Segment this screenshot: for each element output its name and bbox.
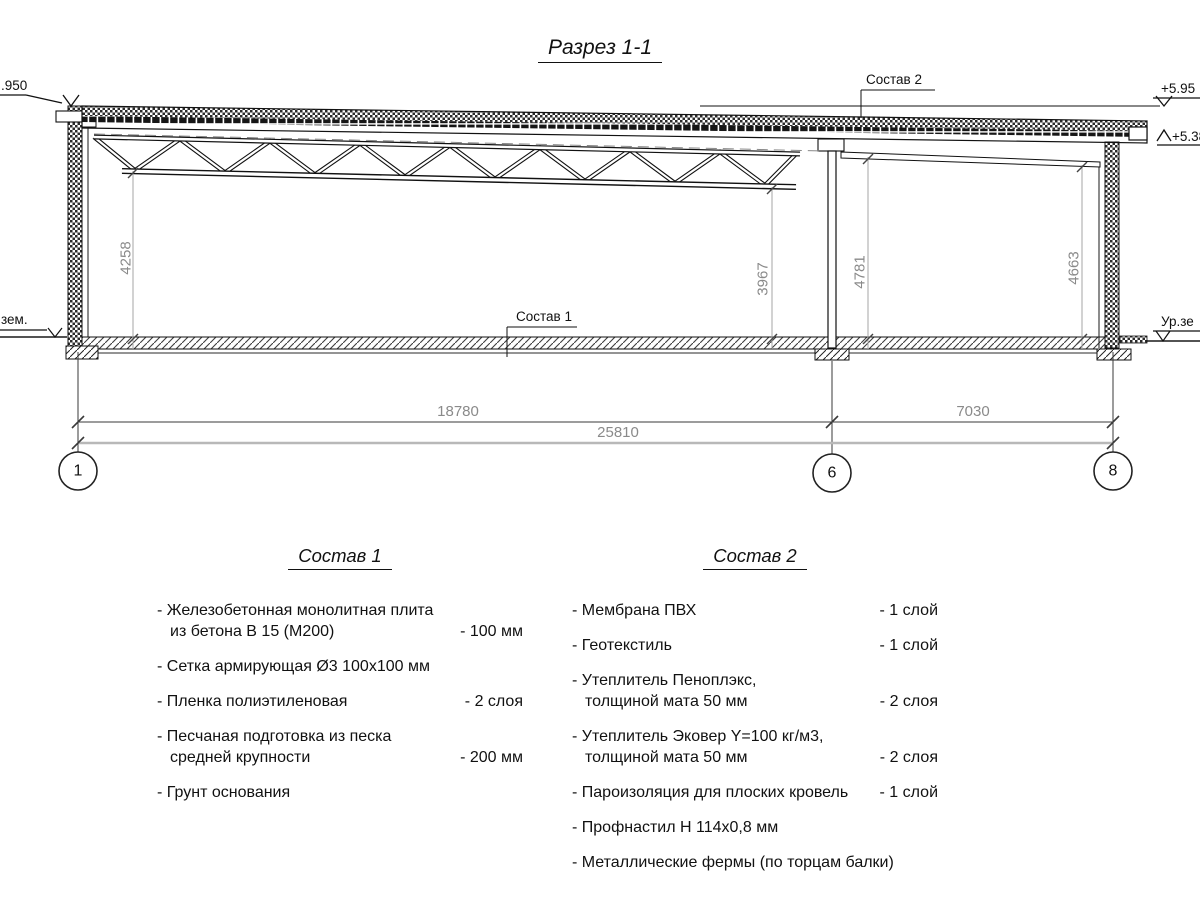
dim-span1: 18780: [437, 403, 479, 420]
spec-item-value: - 1 слой: [872, 782, 938, 803]
spec-item-text: - Сетка армирующая Ø3 100x100 мм: [157, 656, 430, 677]
spec-item-text: - Пароизоляция для плоских кровель: [572, 782, 848, 803]
dim-span2: 7030: [956, 403, 989, 420]
spec-item-value: - 200 мм: [452, 747, 523, 768]
ground-right-label: Ур.зе: [1161, 314, 1194, 329]
spec-item-text: - Профнастил Н 114x0,8 мм: [572, 817, 778, 838]
spec-item-text: толщиной мата 50 мм: [572, 691, 748, 712]
roof-beam: [841, 152, 1100, 167]
ground-mark-right: [1153, 331, 1200, 341]
elevation-mark-left: [0, 95, 79, 106]
dim-height-left: 4258: [118, 241, 135, 274]
ground-mark-left: [0, 328, 62, 337]
spec-item-text: средней крупности: [157, 747, 310, 768]
roof-edge-detail: [1129, 127, 1147, 140]
elevation-arrow-down-icon: [63, 95, 79, 106]
spec-item-value: - 1 слой: [872, 600, 938, 621]
spec2-item: - Геотекстиль - 1 слой: [572, 635, 938, 656]
spec2-item: - Пароизоляция для плоских кровель - 1 с…: [572, 782, 938, 803]
spec-item-text: - Утеплитель Пеноплэкс,: [572, 670, 756, 691]
spec2-item: - Утеплитель Пеноплэкс, толщиной мата 50…: [572, 670, 938, 712]
dim-height-right1: 4781: [852, 255, 869, 288]
elevation-right-top-value: +5.95: [1161, 81, 1195, 96]
steel-truss: [94, 137, 800, 187]
spec-item-value: - 1 слой: [872, 635, 938, 656]
left-wall: [56, 106, 96, 346]
elevation-arrow-up-icon: [1157, 130, 1171, 141]
middle-column: [818, 139, 844, 348]
axis-bubbles: 1 6 8: [59, 452, 1132, 492]
spec-item-value: - 100 мм: [452, 621, 523, 642]
spec-item-text: - Мембрана ПВХ: [572, 600, 696, 621]
spec-item-value: - 2 слоя: [872, 691, 938, 712]
spec-item-text: - Песчаная подготовка из песка: [157, 726, 391, 747]
spec1-heading-text: Состав 1: [288, 545, 391, 570]
spec-item-text: из бетона В 15 (М200): [157, 621, 334, 642]
spec-item-text: - Геотекстиль: [572, 635, 672, 656]
axis-label-6: 6: [828, 465, 837, 482]
floor-slab: [80, 337, 1105, 353]
spec1-item: - Песчаная подготовка из песка средней к…: [157, 726, 523, 768]
sostav2-leader: [861, 90, 935, 118]
axis-label-1: 1: [74, 463, 83, 480]
dim-height-right2: 4663: [1066, 251, 1083, 284]
elevation-right-low-value: +5.38: [1172, 129, 1200, 144]
ground-arrow-icon: [48, 328, 62, 337]
spec1-item: - Сетка армирующая Ø3 100x100 мм: [157, 656, 523, 677]
sostav1-leader-label: Состав 1: [516, 309, 572, 324]
spec-item-text: - Грунт основания: [157, 782, 290, 803]
sostav2-leader-label: Состав 2: [866, 72, 922, 87]
spec2-item: - Металлические фермы (по торцам балки): [572, 852, 938, 873]
spec-item-text: - Железобетонная монолитная плита: [157, 600, 433, 621]
spec2-item: - Утеплитель Эковер Y=100 кг/м3, толщино…: [572, 726, 938, 768]
dim-height-mid: 3967: [755, 262, 772, 295]
spec2-item: - Мембрана ПВХ - 1 слой: [572, 600, 938, 621]
spec-item-text: - Утеплитель Эковер Y=100 кг/м3,: [572, 726, 823, 747]
spec-item-value: - 2 слоя: [457, 691, 523, 712]
spec1-heading: Состав 1: [157, 545, 523, 570]
section-drawing: .950 +5.95 +5.38 Состав 2 Состав 1 зем. …: [0, 0, 1200, 510]
spec-item-text: - Металлические фермы (по торцам балки): [572, 852, 894, 873]
spec2-heading-text: Состав 2: [703, 545, 806, 570]
axis-label-8: 8: [1109, 463, 1118, 480]
elevation-left-value: .950: [1, 78, 27, 93]
right-wall: [1099, 142, 1119, 348]
elevation-mark-right-top: [700, 96, 1200, 106]
horizontal-dimensions: 18780 7030 25810: [72, 352, 1119, 454]
roof-package: [82, 106, 1147, 151]
spec1-item: - Пленка полиэтиленовая - 2 слоя: [157, 691, 523, 712]
spec-item-text: толщиной мата 50 мм: [572, 747, 748, 768]
spec-item-value: - 2 слоя: [872, 747, 938, 768]
spec1-item: - Железобетонная монолитная плита из бет…: [157, 600, 523, 642]
spec2-item: - Профнастил Н 114x0,8 мм: [572, 817, 938, 838]
spec-list-sostav1: Состав 1 - Железобетонная монолитная пли…: [157, 545, 523, 817]
dim-total: 25810: [597, 424, 639, 441]
ground-left-label: зем.: [1, 312, 28, 327]
spec-list-sostav2: Состав 2 - Мембрана ПВХ - 1 слой - Геоте…: [572, 545, 938, 887]
spec-item-text: - Пленка полиэтиленовая: [157, 691, 347, 712]
spec2-heading: Состав 2: [572, 545, 938, 570]
ground-arrow-icon: [1156, 331, 1170, 341]
spec1-item: - Грунт основания: [157, 782, 523, 803]
